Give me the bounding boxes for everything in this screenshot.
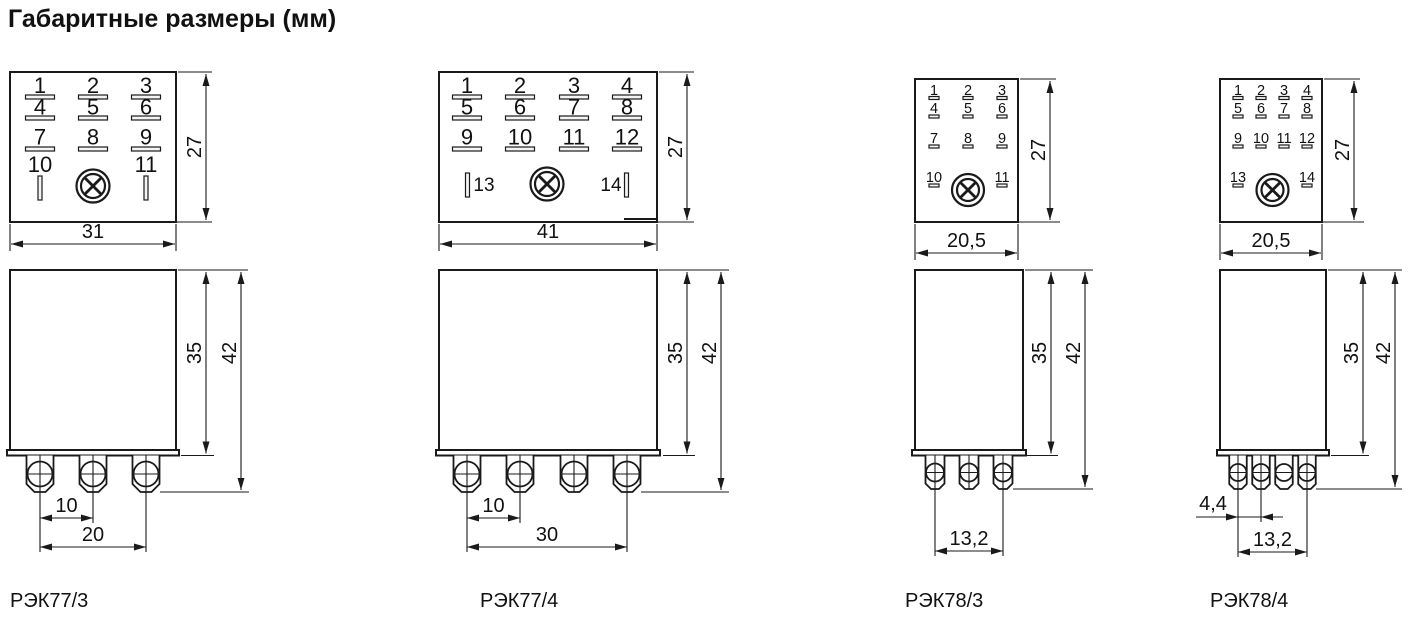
pin-numbers: 1 2 3 4 5 6 7 8 9 10 11 xyxy=(28,73,158,177)
top-view: 1 2 3 4 5 6 7 8 9 10 11 12 13 14 xyxy=(1220,79,1364,260)
dimension-width: 20,5 xyxy=(915,224,1018,260)
top-view: 1 2 3 4 5 6 7 8 9 10 11 xyxy=(915,79,1060,260)
dim-label: 20,5 xyxy=(1252,230,1291,252)
dimension-height: 27 xyxy=(1018,79,1060,222)
pin-number: 8 xyxy=(87,125,99,150)
dim-label: 35 xyxy=(665,342,687,364)
top-view: 1 2 3 4 5 6 7 8 9 10 11 12 13 14 xyxy=(439,72,694,251)
pin-number: 13 xyxy=(473,175,494,196)
pin-number: 14 xyxy=(1299,170,1315,186)
indicator-lamp-icon xyxy=(531,168,564,201)
dimension-total-height: 42 xyxy=(160,272,249,492)
pin-number: 5 xyxy=(964,101,972,117)
front-view: 35 42 4,4 13,2 xyxy=(1196,270,1402,557)
front-view: 35 42 10 20 xyxy=(7,270,249,552)
dim-label: 20 xyxy=(82,524,104,546)
pin-number: 11 xyxy=(994,170,1009,186)
dim-label: 27 xyxy=(184,136,206,158)
dimension-height: 27 xyxy=(176,72,212,222)
model-label: РЭК77/3 xyxy=(10,590,88,612)
pin-number: 10 xyxy=(1253,131,1269,147)
pin-number: 4 xyxy=(34,95,46,120)
dimension-pin-pitch: 10 30 xyxy=(467,492,627,552)
pin-number: 10 xyxy=(926,170,942,186)
dimension-height: 27 xyxy=(1322,79,1364,222)
pin-number: 6 xyxy=(1257,101,1265,117)
front-view: 35 42 13,2 xyxy=(912,270,1093,556)
pin-number: 9 xyxy=(140,125,152,150)
model-label: РЭК77/4 xyxy=(480,590,558,612)
dimension-width: 41 xyxy=(439,221,657,251)
pin-number: 7 xyxy=(930,131,938,147)
dim-label: 10 xyxy=(482,495,504,517)
dim-label: 27 xyxy=(1332,139,1354,161)
dimension-pin-pitch: 10 20 xyxy=(40,492,146,552)
dim-label: 35 xyxy=(184,342,206,364)
pins xyxy=(1229,456,1316,490)
pin-number: 8 xyxy=(964,131,972,147)
dim-label: 10 xyxy=(55,495,77,517)
pin-numbers: 1 2 3 4 5 6 7 8 9 10 11 12 13 14 xyxy=(461,73,639,196)
dim-label: 42 xyxy=(219,342,241,364)
dimension-width: 20,5 xyxy=(1220,224,1322,260)
dimension-total-height: 42 xyxy=(641,272,729,492)
pin-number: 3 xyxy=(998,83,1006,99)
pins xyxy=(926,456,1013,490)
dim-label: 4,4 xyxy=(1199,493,1227,515)
pin-number: 10 xyxy=(508,125,532,150)
pin-number: 9 xyxy=(1234,131,1242,147)
pins xyxy=(454,456,641,493)
pin-number: 6 xyxy=(998,101,1006,117)
dim-label: 13,2 xyxy=(950,528,989,550)
pin-number: 10 xyxy=(28,152,52,177)
dim-label: 27 xyxy=(665,136,687,158)
pin-number: 9 xyxy=(998,131,1006,147)
dim-label: 35 xyxy=(1341,342,1363,364)
pin-number: 1 xyxy=(1234,83,1242,99)
dim-label: 42 xyxy=(1373,342,1395,364)
pin-number: 3 xyxy=(1280,83,1288,99)
dimension-pin-span: 13,2 xyxy=(935,489,1003,556)
pin-number: 7 xyxy=(568,95,580,120)
indicator-lamp-icon xyxy=(952,174,984,206)
model-label: РЭК78/3 xyxy=(905,590,983,612)
pin-number: 5 xyxy=(87,95,99,120)
pin-number: 8 xyxy=(621,95,633,120)
pin-number: 7 xyxy=(1280,101,1288,117)
pin-number: 2 xyxy=(1257,83,1265,99)
diagram-rek77-3: 1 2 3 4 5 6 7 8 9 10 11 xyxy=(7,72,249,612)
model-label: РЭК78/4 xyxy=(1210,590,1288,612)
dim-label: 20,5 xyxy=(947,230,986,252)
dim-label: 35 xyxy=(1029,342,1051,364)
pin-number: 8 xyxy=(1303,101,1311,117)
pin-number: 2 xyxy=(964,83,972,99)
pin-number: 7 xyxy=(34,125,46,150)
dim-label: 30 xyxy=(536,524,558,546)
pins xyxy=(27,456,160,493)
diagram-rek78-4: 1 2 3 4 5 6 7 8 9 10 11 12 13 14 xyxy=(1196,79,1402,612)
dimension-width: 31 xyxy=(10,221,176,251)
pin-number: 5 xyxy=(461,95,473,120)
dimension-drawing-page: Габаритные размеры (мм) xyxy=(0,0,1420,621)
page-title: Габаритные размеры (мм) xyxy=(8,5,336,34)
pin-number: 9 xyxy=(461,125,473,150)
dim-label: 13,2 xyxy=(1253,529,1292,551)
dim-label: 42 xyxy=(699,342,721,364)
pin-number: 6 xyxy=(514,95,526,120)
pin-number: 1 xyxy=(930,83,938,99)
dimensional-drawings: 1 2 3 4 5 6 7 8 9 10 11 xyxy=(0,0,1420,621)
dim-label: 27 xyxy=(1028,139,1050,161)
dimension-height: 27 xyxy=(657,72,694,222)
indicator-lamp-icon xyxy=(77,170,110,203)
pin-number: 11 xyxy=(1276,131,1291,147)
pin-number: 11 xyxy=(135,152,158,177)
dim-label: 41 xyxy=(537,221,559,243)
dim-label: 42 xyxy=(1063,342,1085,364)
dim-label: 31 xyxy=(82,221,104,243)
pin-number: 12 xyxy=(1299,131,1315,147)
pin-number: 4 xyxy=(930,101,938,117)
indicator-lamp-icon xyxy=(1257,174,1289,206)
pin-number: 11 xyxy=(563,125,586,150)
pin-number: 12 xyxy=(615,125,639,150)
pin-number: 4 xyxy=(1303,83,1311,99)
pin-number: 5 xyxy=(1234,101,1242,117)
top-view: 1 2 3 4 5 6 7 8 9 10 11 xyxy=(10,72,212,251)
diagram-rek78-3: 1 2 3 4 5 6 7 8 9 10 11 xyxy=(905,79,1093,612)
front-view: 35 42 10 30 xyxy=(436,270,729,552)
pin-number: 14 xyxy=(600,175,622,196)
dimension-pin-pitch: 4,4 13,2 xyxy=(1196,489,1307,557)
diagram-rek77-4: 1 2 3 4 5 6 7 8 9 10 11 12 13 14 xyxy=(436,72,729,612)
pin-number: 6 xyxy=(140,95,152,120)
pin-number: 13 xyxy=(1230,170,1246,186)
